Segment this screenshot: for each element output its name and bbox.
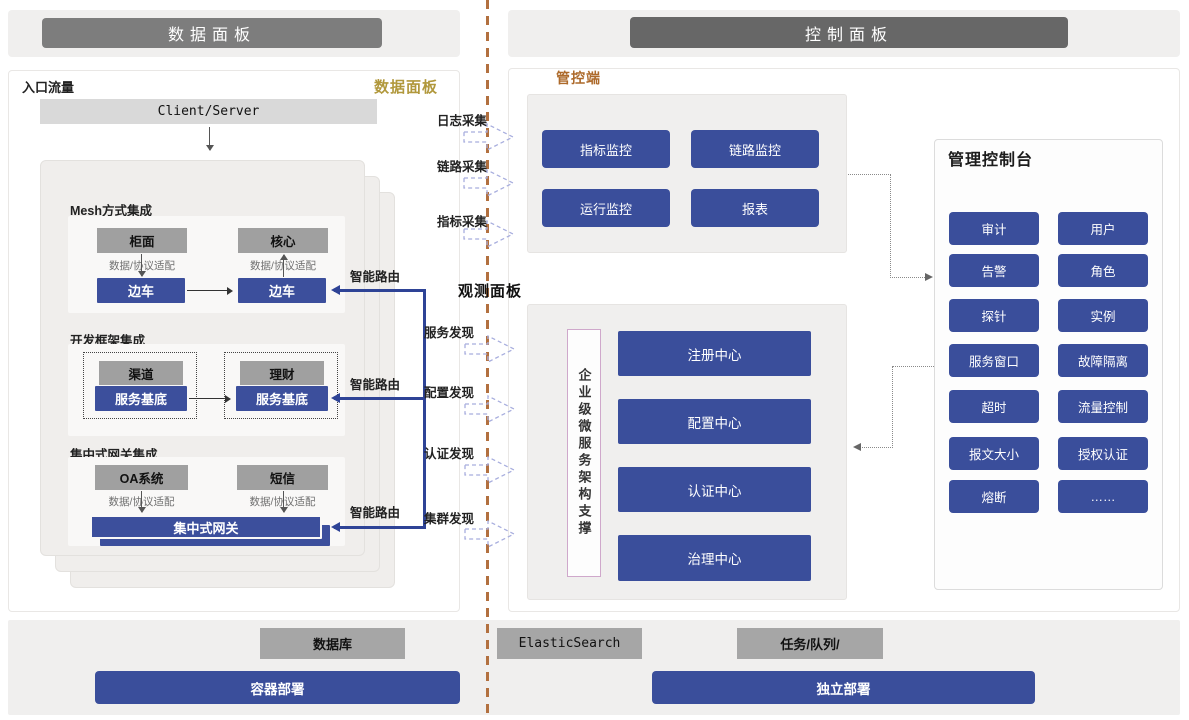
dotted-connector (893, 366, 934, 367)
elasticsearch-node: ElasticSearch (497, 628, 642, 659)
metric-monitor-node: 指标监控 (542, 130, 670, 168)
console-message-size-node: 报文大小 (949, 437, 1039, 470)
monitoring-panel (527, 94, 847, 253)
console-more-node: …… (1058, 480, 1148, 513)
oa-system-node: OA系统 (95, 465, 188, 490)
support-vertical-box: 企业级微服务架构支撑 (567, 329, 601, 577)
smart-routing-label-3: 智能路由 (350, 502, 400, 521)
config-center-node: 配置中心 (618, 399, 811, 444)
flow-arrow-icon (464, 394, 516, 424)
management-console-title: 管理控制台 (948, 146, 1033, 170)
client-server-label: Client/Server (158, 104, 260, 119)
service-base-node-left: 服务基底 (95, 386, 187, 411)
container-deploy-bar: 容器部署 (95, 671, 460, 704)
console-user-node: 用户 (1058, 212, 1148, 245)
data-plane-header: 数据面板 (42, 18, 382, 48)
sidecar-link-arrow (187, 290, 231, 291)
counter-to-sidecar-arrow (141, 254, 142, 276)
runtime-monitor-node: 运行监控 (542, 189, 670, 227)
dotted-connector (890, 174, 891, 278)
smart-routing-arrowhead-2-icon (326, 393, 340, 403)
smart-routing-label-1: 智能路由 (350, 266, 400, 285)
standalone-deploy-bar: 独立部署 (652, 671, 1035, 704)
connector-arrowhead-right-icon (925, 273, 937, 281)
smart-routing-arrowhead-1-icon (326, 285, 340, 295)
sidecar-node-left: 边车 (97, 278, 185, 303)
flow-arrow-icon (463, 122, 515, 152)
trace-monitor-node: 链路监控 (691, 130, 819, 168)
sms-to-gateway-arrow (283, 491, 284, 512)
console-timeout-node: 超时 (949, 390, 1039, 423)
governance-center-node: 治理中心 (618, 535, 811, 581)
connector-arrowhead-left-icon (849, 443, 861, 451)
service-base-node-right: 服务基底 (236, 386, 328, 411)
control-plane-header: 控制面板 (630, 17, 1068, 48)
mesh-counter-node: 柜面 (97, 228, 187, 253)
flow-arrow-icon (463, 219, 515, 249)
entry-traffic-label: 入口流量 (22, 77, 74, 96)
smart-routing-branch-1 (334, 289, 425, 292)
console-fault-isolation-node: 故障隔离 (1058, 344, 1148, 377)
console-probe-node: 探针 (949, 299, 1039, 332)
dotted-connector (892, 366, 893, 448)
sidecar-node-right: 边车 (238, 278, 326, 303)
auth-center-node: 认证中心 (618, 467, 811, 512)
console-instance-node: 实例 (1058, 299, 1148, 332)
client-server-node: Client/Server (40, 99, 377, 124)
channel-node: 渠道 (99, 361, 183, 385)
console-authz-node: 授权认证 (1058, 437, 1148, 470)
console-circuit-breaker-node: 熔断 (949, 480, 1039, 513)
flow-arrow-icon (464, 519, 516, 549)
wealth-node: 理财 (240, 361, 324, 385)
observe-panel-label: 观测面板 (458, 280, 522, 301)
console-traffic-control-node: 流量控制 (1058, 390, 1148, 423)
console-audit-node: 审计 (949, 212, 1039, 245)
architecture-diagram: 数据面板 控制面板 入口流量 数据面板 Client/Server Mesh方式… (0, 0, 1189, 720)
flow-arrow-icon (463, 168, 515, 198)
centralized-gateway-bar: 集中式网关 (90, 515, 322, 539)
elasticsearch-label: ElasticSearch (519, 636, 621, 651)
oa-to-gateway-arrow (141, 491, 142, 512)
console-role-node: 角色 (1058, 254, 1148, 287)
sidecar-to-core-arrow (283, 255, 284, 277)
smart-routing-branch-3 (334, 526, 425, 529)
support-vertical-label: 企业级微服务架构支撑 (575, 368, 594, 538)
management-end-label: 管控端 (556, 68, 601, 88)
console-service-window-node: 服务窗口 (949, 344, 1039, 377)
data-panel-corner-label: 数据面板 (374, 76, 438, 97)
sms-node: 短信 (237, 465, 328, 490)
flow-arrow-icon (464, 455, 516, 485)
task-queue-node: 任务/队列/ (737, 628, 883, 659)
registry-center-node: 注册中心 (618, 331, 811, 376)
smart-routing-arrowhead-3-icon (326, 522, 340, 532)
report-node: 报表 (691, 189, 819, 227)
smart-routing-branch-2 (334, 397, 425, 400)
dotted-connector (890, 277, 927, 278)
console-alert-node: 告警 (949, 254, 1039, 287)
dotted-connector (856, 447, 893, 448)
service-base-link-arrow (189, 398, 229, 399)
flow-arrow-icon (464, 334, 516, 364)
smart-routing-label-2: 智能路由 (350, 374, 400, 393)
client-to-stack-arrow (209, 127, 210, 150)
database-node: 数据库 (260, 628, 405, 659)
dotted-connector (848, 174, 891, 175)
